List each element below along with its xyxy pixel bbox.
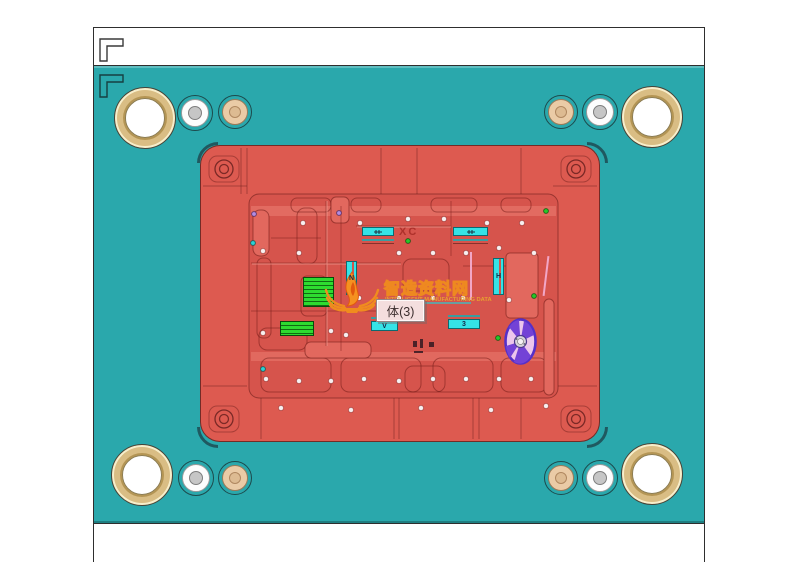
bushing-hole — [125, 98, 165, 138]
top-clamp-plate[interactable] — [94, 28, 704, 66]
insert-edge-line — [362, 239, 394, 241]
support-pin[interactable] — [544, 95, 578, 129]
insert-label: V — [382, 323, 387, 330]
corner-mark-icon — [98, 73, 126, 99]
cyan-insert[interactable]: 3 — [448, 319, 480, 329]
guide-bushing[interactable] — [621, 443, 683, 505]
watermark-title: 智造资料网 — [384, 275, 469, 299]
guide-bushing[interactable] — [114, 87, 176, 149]
insert-edge-line — [362, 243, 394, 244]
xc-engraving: XC — [399, 226, 418, 238]
bushing-hole — [122, 455, 162, 495]
cyan-insert-vertical[interactable]: H — [493, 258, 504, 295]
tooltip-label: 体(3) — [387, 301, 415, 320]
bushing-hole — [632, 454, 672, 494]
support-pin[interactable] — [218, 461, 252, 495]
guide-bushing[interactable] — [111, 444, 173, 506]
insert-label: N — [349, 275, 354, 282]
cad-viewport: XC N H V 3 — [0, 0, 800, 585]
bottom-clamp-plate[interactable] — [94, 523, 704, 562]
green-insert[interactable] — [280, 321, 314, 336]
insert-edge-line — [453, 243, 488, 244]
support-pin[interactable] — [544, 461, 578, 495]
return-pin[interactable] — [582, 460, 618, 496]
cyan-insert[interactable] — [362, 227, 394, 236]
guide-bushing[interactable] — [621, 86, 683, 148]
impeller-part[interactable] — [504, 318, 537, 370]
support-pin[interactable] — [218, 95, 252, 129]
cyan-insert[interactable]: V — [371, 321, 398, 331]
return-pin[interactable] — [178, 460, 214, 496]
insert-edge-line — [453, 239, 488, 241]
return-pin[interactable] — [177, 95, 213, 131]
cyan-insert[interactable] — [453, 227, 488, 236]
hover-tooltip: 体(3) — [376, 299, 425, 322]
insert-edge-line — [448, 315, 480, 317]
insert-label: H — [496, 273, 501, 280]
insert-label: 3 — [462, 321, 466, 328]
return-pin[interactable] — [582, 94, 618, 130]
corner-mark-icon — [98, 37, 126, 63]
bushing-hole — [632, 97, 672, 137]
